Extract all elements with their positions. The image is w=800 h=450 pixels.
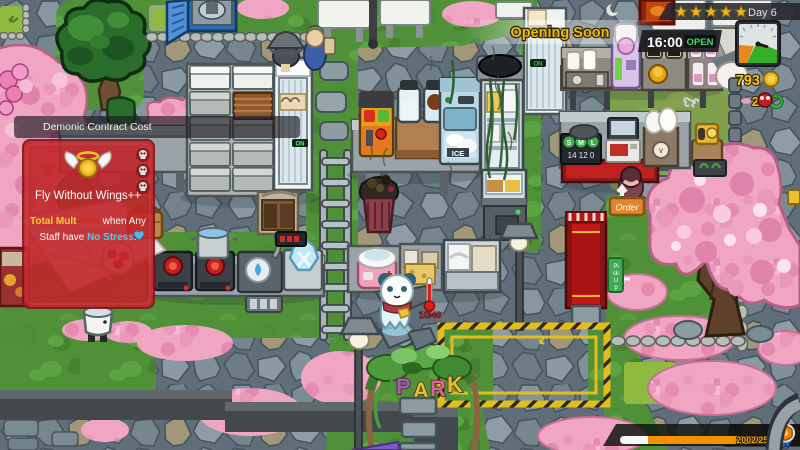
svg-text:U: U xyxy=(614,278,618,284)
svg-text:ON: ON xyxy=(534,62,543,68)
svg-text:Order: Order xyxy=(615,203,639,213)
svg-text:K: K xyxy=(447,372,463,397)
svg-text:P: P xyxy=(396,374,411,399)
svg-text:793: 793 xyxy=(736,73,760,89)
svg-text:10/40: 10/40 xyxy=(419,310,442,320)
svg-text:ON: ON xyxy=(296,142,305,148)
svg-text:v: v xyxy=(659,146,663,155)
svg-text:Staff have No Stress.: Staff have No Stress. xyxy=(39,232,136,243)
svg-text:Opening Soon: Opening Soon xyxy=(510,25,609,41)
svg-text:L: L xyxy=(591,140,596,147)
svg-text:S: S xyxy=(567,140,572,147)
svg-text:Pi: Pi xyxy=(613,264,618,270)
svg-text:OPEN: OPEN xyxy=(687,37,714,48)
svg-text:Total Mult-40% when Any: Total Mult-40% when Any xyxy=(30,216,146,227)
svg-text:Demonic Contract Cost: Demonic Contract Cost xyxy=(43,121,152,133)
svg-text:ICE: ICE xyxy=(452,149,465,158)
svg-text:16:00: 16:00 xyxy=(647,34,683,50)
svg-text:M: M xyxy=(578,140,584,147)
svg-text:14 12 0: 14 12 0 xyxy=(568,151,595,160)
svg-text:ck: ck xyxy=(613,271,620,277)
svg-text:Day 6: Day 6 xyxy=(748,7,777,19)
svg-text:Fly Without Wings++: Fly Without Wings++ xyxy=(35,190,141,202)
